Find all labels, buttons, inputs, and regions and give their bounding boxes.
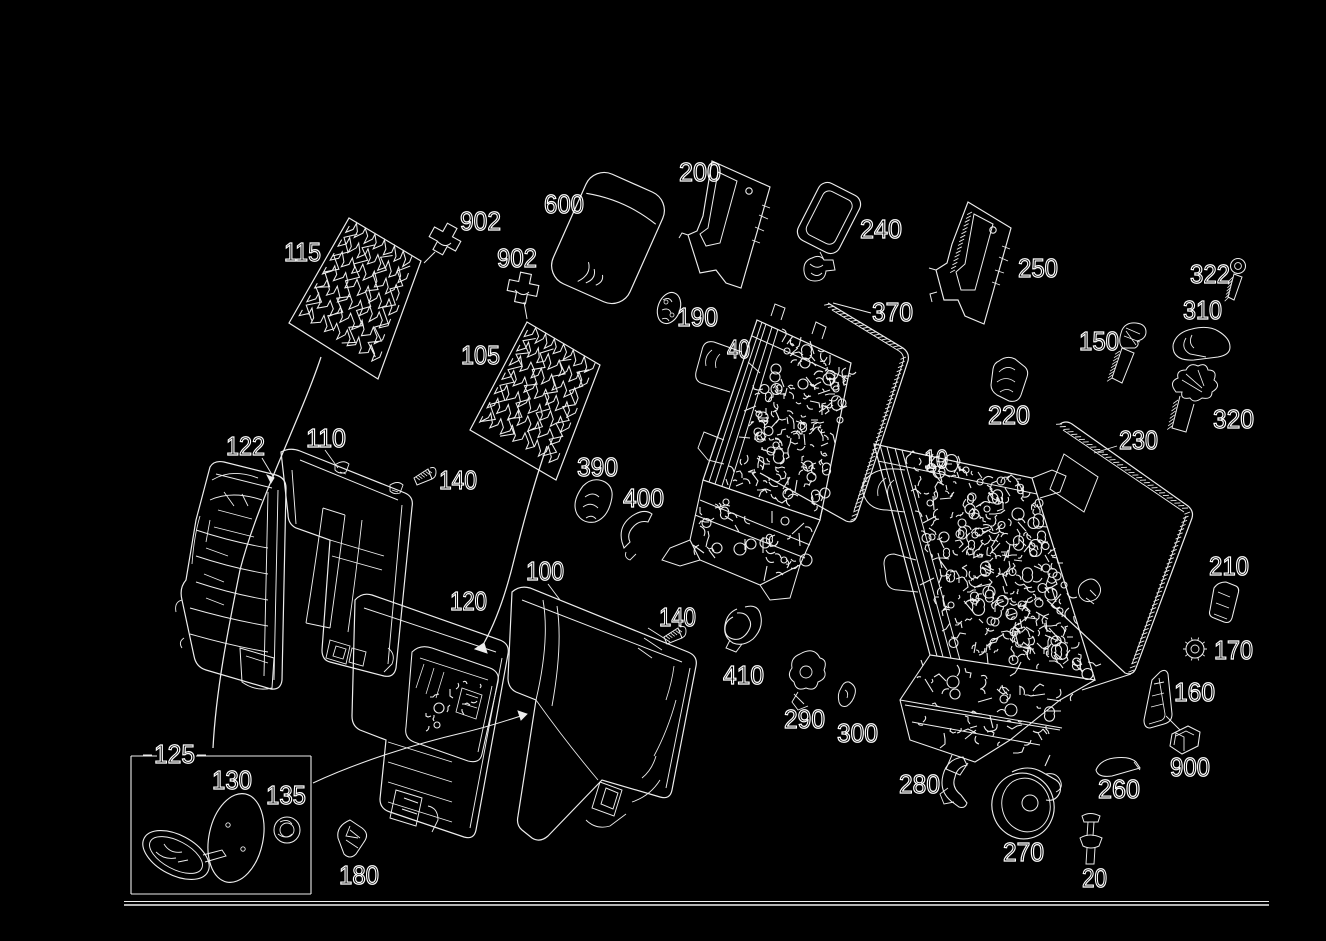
svg-text:300: 300 — [837, 718, 878, 748]
svg-text:240: 240 — [860, 214, 902, 244]
svg-text:600: 600 — [544, 189, 584, 219]
svg-text:105: 105 — [461, 340, 500, 370]
svg-text:280: 280 — [899, 769, 940, 799]
svg-text:230: 230 — [1119, 425, 1158, 455]
svg-text:290: 290 — [784, 704, 825, 734]
svg-text:322: 322 — [1190, 259, 1230, 289]
svg-text:135: 135 — [266, 780, 306, 810]
svg-text:200: 200 — [679, 157, 721, 187]
svg-text:140: 140 — [659, 602, 696, 632]
svg-text:390: 390 — [577, 452, 618, 482]
svg-text:125: 125 — [154, 739, 195, 769]
svg-text:160: 160 — [1174, 677, 1215, 707]
svg-text:120: 120 — [450, 586, 487, 616]
svg-text:122: 122 — [226, 431, 265, 461]
svg-text:220: 220 — [988, 400, 1030, 430]
svg-text:170: 170 — [1214, 635, 1253, 665]
svg-text:40: 40 — [727, 334, 750, 364]
svg-text:110: 110 — [306, 423, 346, 453]
svg-text:260: 260 — [1098, 774, 1140, 804]
svg-text:140: 140 — [439, 465, 477, 495]
svg-text:270: 270 — [1003, 837, 1044, 867]
svg-text:400: 400 — [623, 483, 664, 513]
svg-text:410: 410 — [723, 660, 764, 690]
svg-text:320: 320 — [1213, 404, 1254, 434]
svg-text:180: 180 — [339, 860, 379, 890]
svg-text:210: 210 — [1209, 551, 1249, 581]
svg-text:902: 902 — [460, 206, 501, 236]
svg-text:20: 20 — [1082, 863, 1107, 893]
svg-text:370: 370 — [872, 297, 913, 327]
svg-text:310: 310 — [1183, 295, 1222, 325]
svg-text:100: 100 — [526, 556, 564, 586]
svg-text:115: 115 — [284, 237, 321, 267]
svg-text:900: 900 — [1170, 752, 1210, 782]
svg-text:10: 10 — [924, 444, 948, 474]
svg-text:150: 150 — [1079, 326, 1119, 356]
svg-text:190: 190 — [677, 302, 718, 332]
svg-text:250: 250 — [1018, 253, 1058, 283]
svg-text:902: 902 — [497, 243, 537, 273]
svg-text:130: 130 — [212, 765, 252, 795]
